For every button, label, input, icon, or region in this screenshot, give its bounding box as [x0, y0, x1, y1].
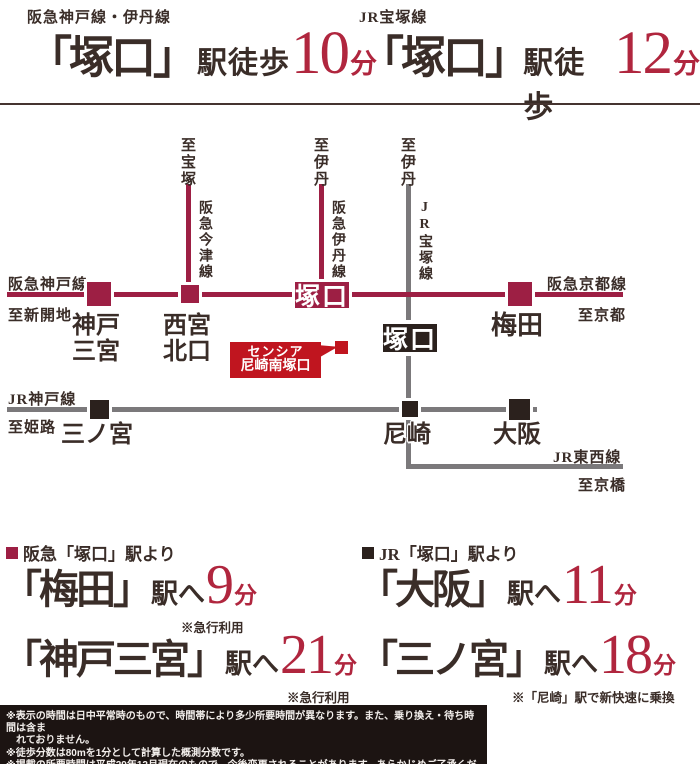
- hankyu-itami-line: [319, 184, 324, 292]
- access-kobesannomiya-minutes: 21: [280, 627, 332, 683]
- jr-kobe-line-label: JR神戸線: [8, 388, 76, 409]
- station-label-nishinomiya: 西宮 北口: [137, 313, 237, 365]
- hankyu-imazu-line-label: 阪急今津線: [197, 200, 211, 280]
- disclaimer-box: ※表示の時間は日中平常時のもので、時間帯により多少所要時間が異なります。また、乗…: [0, 705, 487, 764]
- access-osaka-station: 「大阪」: [358, 566, 506, 614]
- jr-walk-minutes: 12: [614, 23, 671, 84]
- access-row-sannomiya: 「三ノ宮」 駅へ 18 分: [358, 627, 676, 684]
- jr-station-name: 「塚口」: [359, 31, 521, 85]
- route-map: 至宝塚 至伊丹 至伊丹 阪急今津線 阪急伊丹線 JR宝塚線 阪急神戸線 至新開地…: [0, 110, 700, 530]
- header-hankyu: 阪急神戸線・伊丹線 「塚口」 駅徒歩 10 分: [27, 6, 377, 85]
- access-osaka-to: 駅へ: [507, 572, 561, 611]
- access-sannomiya-note: ※「尼崎」駅で新快速に乗換: [512, 687, 675, 706]
- access-row-umeda: 「梅田」 駅へ 9 分: [2, 557, 257, 614]
- station-label-sannomiya: 三ノ宮: [47, 422, 147, 448]
- access-kobesannomiya-station: 「神戸三宮」: [2, 636, 224, 684]
- station-label-umeda: 梅田: [467, 313, 567, 339]
- jr-walk-unit: 分: [673, 42, 700, 81]
- disclaimer-line-2: れておりません。: [6, 735, 482, 747]
- access-sannomiya-minutes: 18: [599, 627, 651, 683]
- property-marker: [335, 341, 348, 354]
- access-sannomiya-station: 「三ノ宮」: [358, 636, 543, 684]
- hankyu-walk-label: 駅徒歩: [197, 38, 290, 82]
- to-itami-jr-label: 至伊丹: [399, 137, 414, 188]
- access-osaka-unit: 分: [614, 576, 637, 610]
- tsukaguchi-jr-label: 塚口: [383, 320, 437, 356]
- hankyu-imazu-line: [186, 184, 191, 297]
- access-umeda-station: 「梅田」: [2, 566, 150, 614]
- hankyu-station-name: 「塚口」: [27, 31, 195, 85]
- access-sannomiya-to: 駅へ: [544, 642, 598, 681]
- hankyu-kobe-line-label: 阪急神戸線: [8, 273, 88, 294]
- station-marker-nishinomiya-kitaguchi: [178, 282, 202, 306]
- disclaimer-line-3: ※徒歩分数は80mを1分として計算した概測分数です。: [6, 748, 482, 760]
- hankyu-itami-line-label: 阪急伊丹線: [330, 200, 344, 280]
- header-divider: [0, 103, 700, 105]
- station-marker-umeda: [505, 279, 535, 309]
- to-kyoto-label: 至京都: [578, 304, 626, 325]
- hankyu-walk-minutes: 10: [291, 23, 348, 84]
- station-marker-amagasaki: [399, 398, 421, 420]
- hankyu-walk-headline: 「塚口」 駅徒歩 10 分: [27, 23, 377, 85]
- property-label: センシア 尼崎南塚口: [230, 342, 321, 378]
- station-marker-kobe-sannomiya: [84, 279, 114, 309]
- access-kobesannomiya-note: ※急行利用: [287, 687, 350, 706]
- hankyu-kyoto-line-label: 阪急京都線: [547, 273, 627, 294]
- property-name-line2: 尼崎南塚口: [230, 359, 321, 375]
- kobe-sannomiya-line1: 神戸: [46, 313, 146, 339]
- access-umeda-unit: 分: [234, 576, 257, 610]
- disclaimer-line-4: ※掲載の所要時間は平成29年12月現在のもので、今後変更されることがあります。あ…: [6, 760, 482, 764]
- nishinomiya-line2: 北口: [137, 339, 237, 365]
- header-jr: JR宝塚線 「塚口」 駅徒歩 12 分: [359, 6, 700, 126]
- access-row-kobe-sannomiya: 「神戸三宮」 駅へ 21 分: [2, 627, 357, 684]
- access-osaka-minutes: 11: [562, 557, 612, 613]
- to-kyobashi-label: 至京橋: [578, 474, 626, 495]
- kobe-sannomiya-line2: 三宮: [46, 339, 146, 365]
- nishinomiya-line1: 西宮: [137, 313, 237, 339]
- access-row-osaka: 「大阪」 駅へ 11 分: [358, 557, 637, 614]
- access-kobesannomiya-unit: 分: [334, 646, 357, 680]
- property-name-line1: センシア: [230, 344, 321, 359]
- station-label-osaka: 大阪: [467, 422, 567, 448]
- jr-takarazuka-line-label: JR宝塚線: [417, 200, 431, 282]
- access-kobesannomiya-to: 駅へ: [225, 642, 279, 681]
- station-box-tsukaguchi-hankyu: 塚口: [292, 279, 352, 311]
- access-umeda-to: 駅へ: [151, 572, 205, 611]
- jr-tozai-line-label: JR東西線: [553, 446, 621, 467]
- station-label-amagasaki: 尼崎: [357, 422, 457, 448]
- access-advert-page: 阪急神戸線・伊丹線 「塚口」 駅徒歩 10 分 JR宝塚線 「塚口」 駅徒歩 1…: [0, 0, 700, 764]
- station-marker-osaka: [506, 396, 533, 423]
- station-marker-sannomiya: [87, 397, 112, 422]
- disclaimer-line-1: ※表示の時間は日中平常時のもので、時間帯により多少所要時間が異なります。また、乗…: [6, 711, 482, 735]
- access-sannomiya-unit: 分: [653, 646, 676, 680]
- to-itami-hankyu-label: 至伊丹: [312, 137, 327, 188]
- station-label-kobe-sannomiya: 神戸 三宮: [46, 313, 146, 365]
- to-takarazuka-label: 至宝塚: [179, 137, 194, 188]
- tsukaguchi-hankyu-label: 塚口: [295, 277, 349, 313]
- access-umeda-minutes: 9: [206, 557, 232, 613]
- station-box-tsukaguchi-jr: 塚口: [379, 320, 441, 356]
